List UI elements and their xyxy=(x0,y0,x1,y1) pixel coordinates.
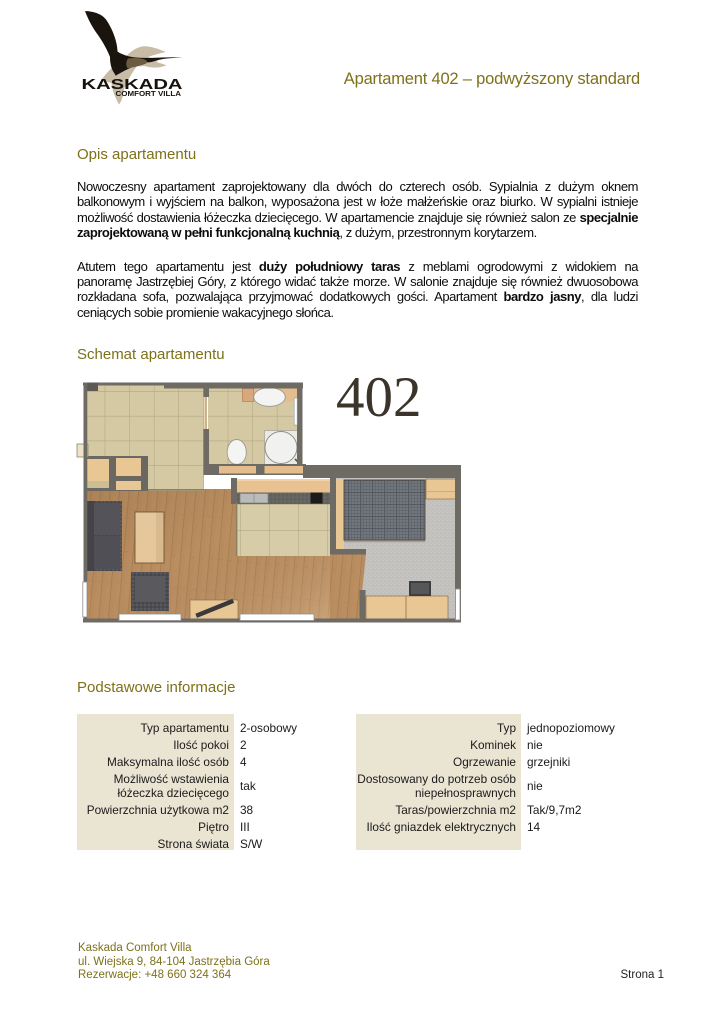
svg-text:402: 402 xyxy=(336,366,422,429)
